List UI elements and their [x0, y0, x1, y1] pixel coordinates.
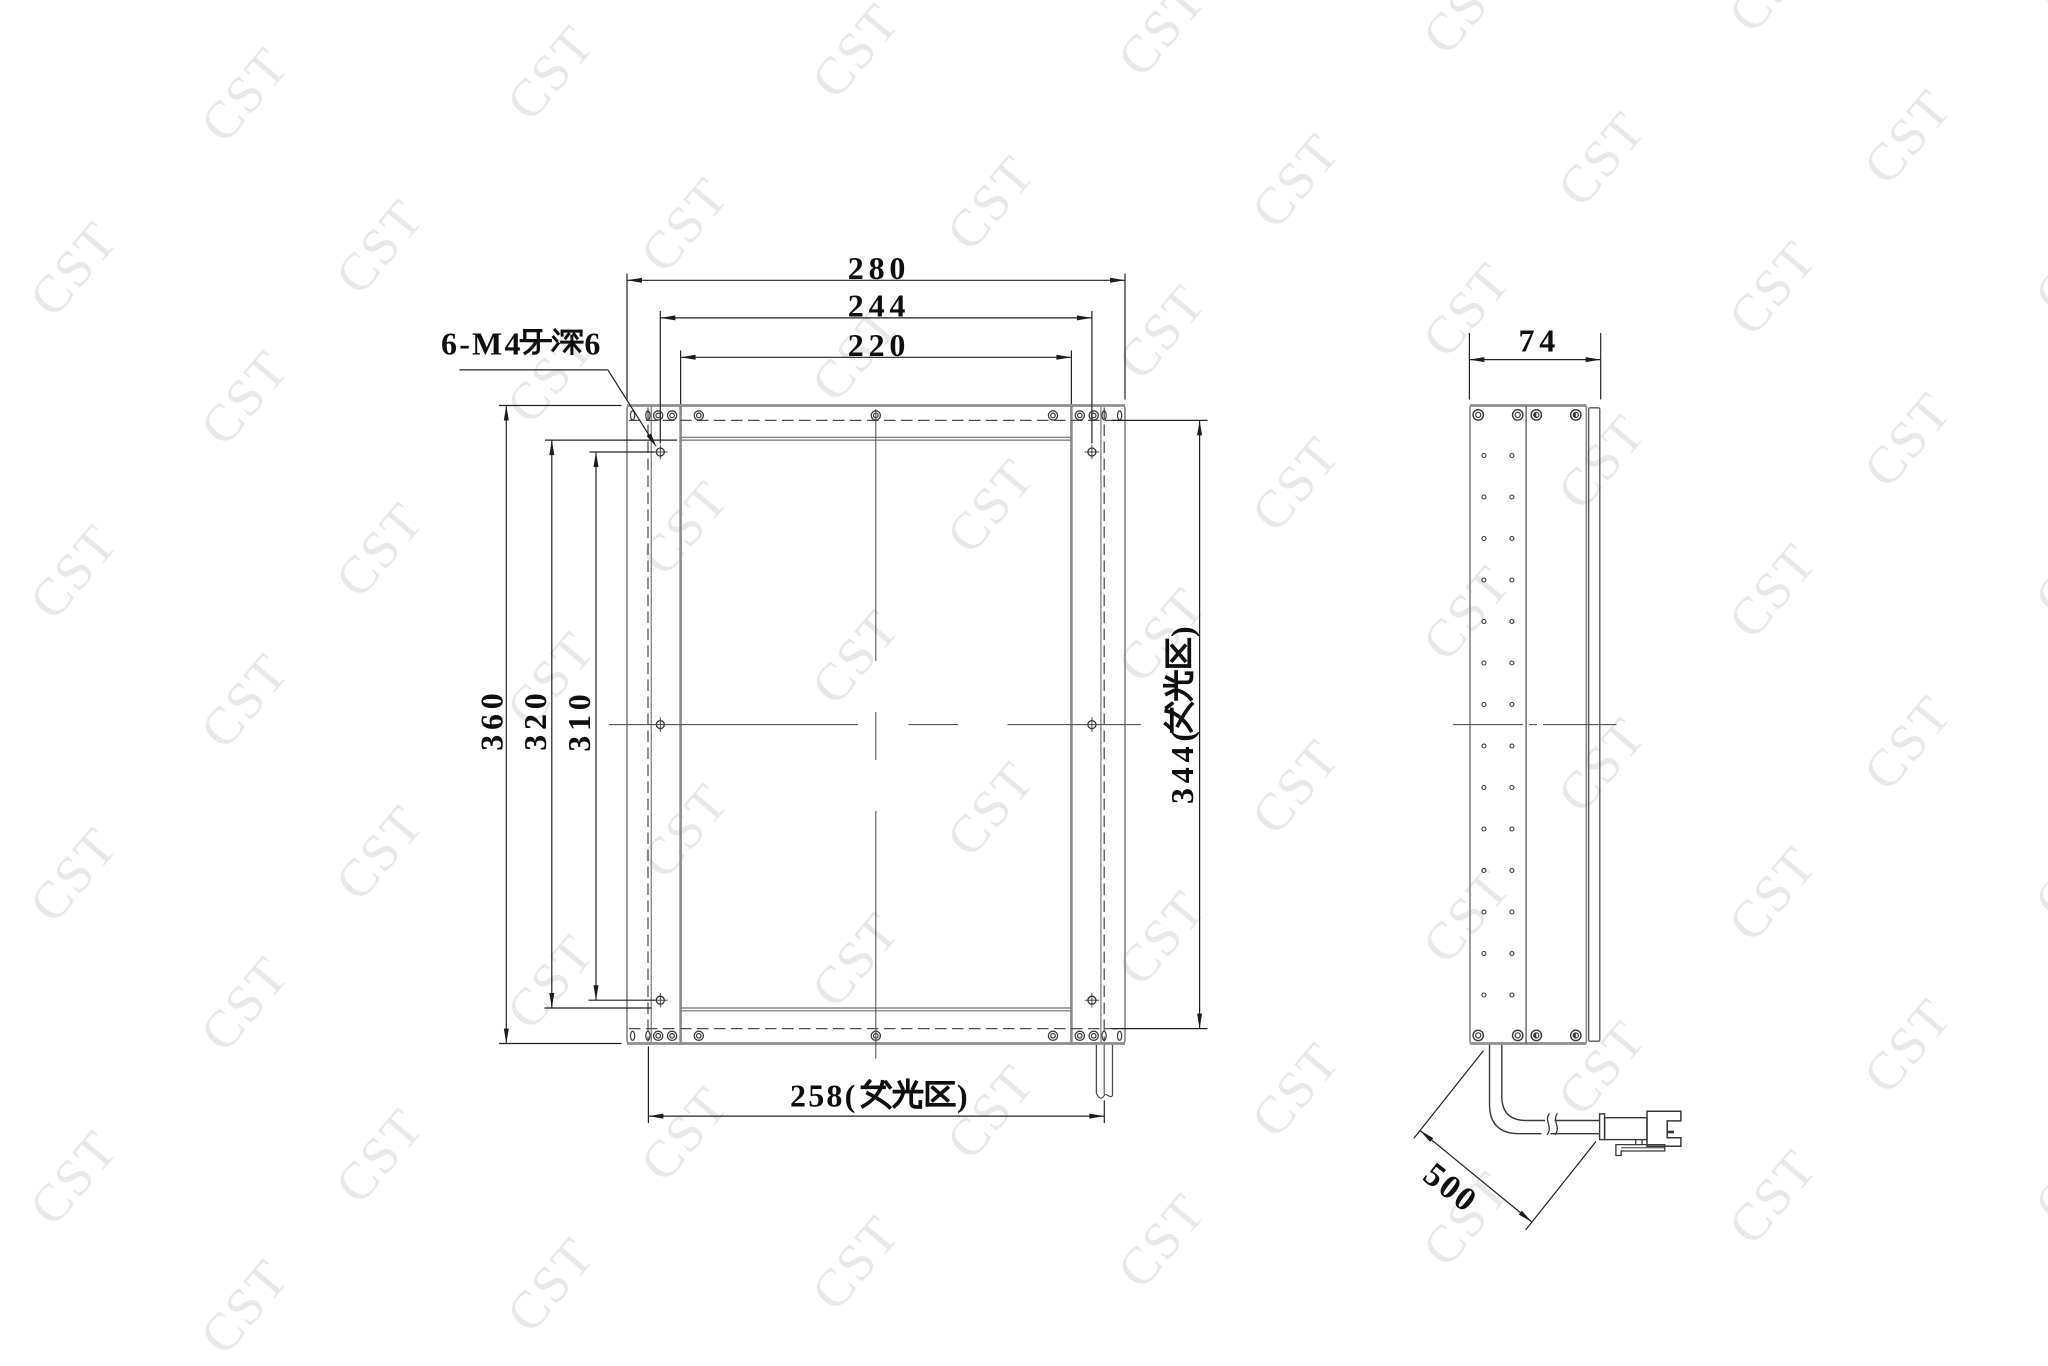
svg-text:244: 244: [848, 287, 910, 323]
svg-text:6: 6: [584, 326, 602, 362]
svg-text:): ): [957, 1077, 970, 1113]
svg-text:74: 74: [1518, 322, 1560, 358]
svg-text:220: 220: [848, 327, 910, 363]
svg-text:320: 320: [517, 688, 553, 750]
svg-text:): ): [1164, 624, 1200, 637]
svg-text:280: 280: [848, 250, 910, 286]
svg-text:344(: 344(: [1164, 726, 1200, 804]
svg-text:360: 360: [474, 688, 510, 750]
svg-text:6-M4: 6-M4: [441, 326, 523, 362]
svg-text:258(: 258(: [790, 1077, 857, 1113]
svg-text:310: 310: [561, 689, 597, 751]
